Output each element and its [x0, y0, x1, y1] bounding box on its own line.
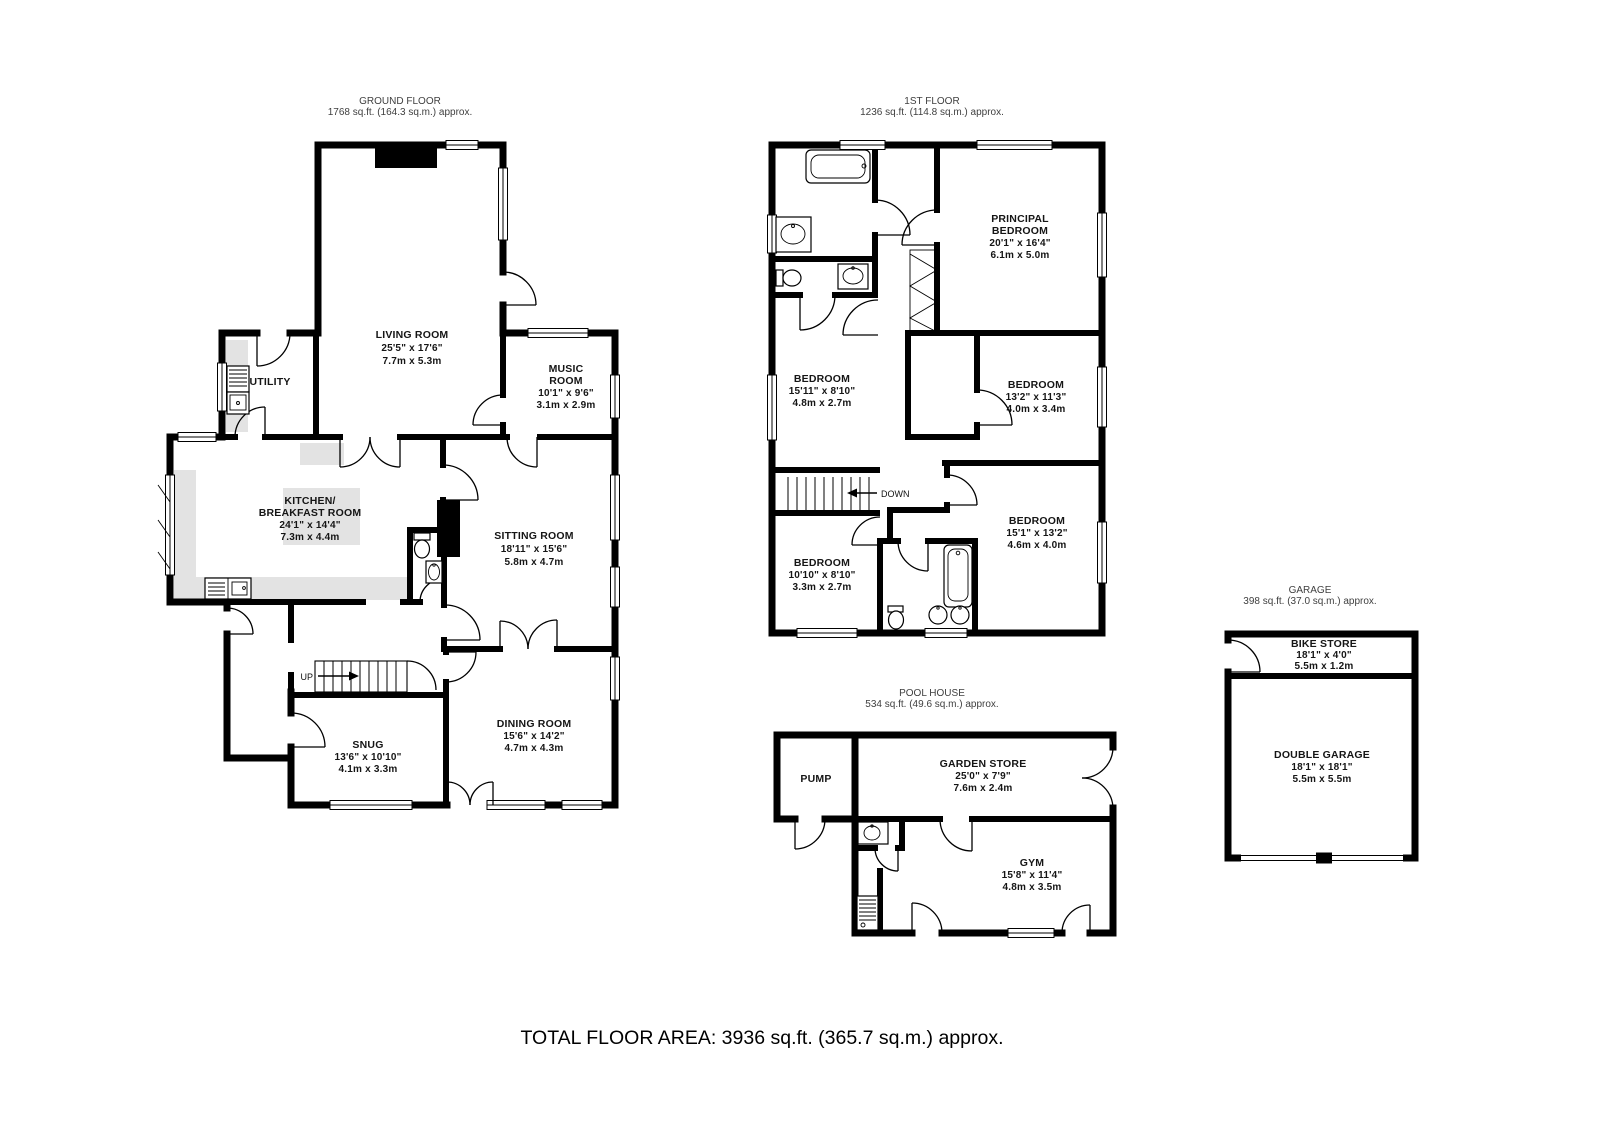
- music-room-imperial: 10'1" x 9'6": [538, 388, 594, 399]
- dining-room-metric: 4.7m x 4.3m: [505, 743, 564, 754]
- total-floor-area: TOTAL FLOOR AREA: 3936 sq.ft. (365.7 sq.…: [520, 1027, 1003, 1049]
- pump-label: PUMP: [800, 773, 831, 785]
- principal-bedroom-label-2: BEDROOM: [992, 225, 1048, 237]
- dining-room-label: DINING ROOM: [497, 718, 572, 730]
- stairs-up-label: UP: [300, 672, 313, 682]
- gym-label: GYM: [1020, 857, 1045, 869]
- bike-store-imperial: 18'1" x 4'0": [1296, 650, 1352, 661]
- kitchen-imperial: 24'1" x 14'4": [279, 520, 340, 531]
- music-room-label-2: ROOM: [549, 375, 583, 387]
- living-room-label: LIVING ROOM: [376, 329, 449, 341]
- stairs-down: DOWN: [788, 477, 910, 510]
- wc-toilet-icon: [414, 533, 430, 558]
- wc-basin-icon: [426, 561, 442, 583]
- utility-label: UTILITY: [249, 376, 290, 388]
- kitchen-counters: [174, 340, 408, 600]
- music-room-label-1: MUSIC: [549, 363, 584, 375]
- ground-floor-plan: UP LIVING ROOM 25'5" x 17'6" 7.7m: [158, 141, 620, 810]
- bedroom-right-low-metric: 4.6m x 4.0m: [1008, 540, 1067, 551]
- garden-store-imperial: 25'0" x 7'9": [955, 771, 1011, 782]
- bedroom-left-low-label: BEDROOM: [794, 557, 850, 569]
- garage-area: 398 sq.ft. (37.0 sq.m.) approx.: [1243, 596, 1376, 607]
- snug-label: SNUG: [352, 739, 383, 751]
- kitchen-label-1: KITCHEN/: [284, 495, 335, 507]
- pool-interior-walls: [855, 819, 1113, 933]
- stairs-up: UP: [300, 661, 436, 692]
- bedroom-right-low-imperial: 15'1" x 13'2": [1006, 528, 1067, 539]
- garage-plan: BIKE STORE 18'1" x 4'0" 5.5m x 1.2m DOUB…: [1228, 634, 1415, 864]
- double-garage-imperial: 18'1" x 18'1": [1291, 762, 1352, 773]
- snug-imperial: 13'6" x 10'10": [334, 752, 401, 763]
- bike-store-door: [1228, 640, 1260, 672]
- double-garage-metric: 5.5m x 5.5m: [1293, 774, 1352, 785]
- ground-floor-area: 1768 sq.ft. (164.3 sq.m.) approx.: [328, 107, 473, 118]
- bedroom-left-low-metric: 3.3m x 2.7m: [793, 582, 852, 593]
- bedroom-left-metric: 4.8m x 2.7m: [793, 398, 852, 409]
- bath-icon-second: [944, 545, 972, 607]
- shower-icon: [857, 896, 878, 930]
- double-garage-label: DOUBLE GARAGE: [1274, 749, 1370, 761]
- twin-basins-icon: [929, 606, 969, 624]
- wardrobe-icon: [910, 250, 937, 332]
- living-room-metric: 7.7m x 5.3m: [383, 356, 442, 367]
- stairs-down-label: DOWN: [881, 489, 910, 499]
- bedroom-left-low-imperial: 10'10" x 8'10": [788, 570, 855, 581]
- living-room-imperial: 25'5" x 17'6": [381, 343, 442, 354]
- chimney-breast: [375, 148, 437, 168]
- kitchen-sink-icon: [205, 578, 251, 599]
- pool-house-plan: PUMP GARDEN STORE 25'0" x 7'9" 7.6m x 2.…: [777, 735, 1113, 938]
- gym-imperial: 15'8" x 11'4": [1002, 870, 1063, 881]
- bedroom-right-mid-imperial: 13'2" x 11'3": [1006, 392, 1067, 403]
- bike-store-label: BIKE STORE: [1291, 638, 1357, 650]
- music-room-metric: 3.1m x 2.9m: [537, 400, 596, 411]
- sitting-room-label: SITTING ROOM: [494, 530, 573, 542]
- pool-basin-icon: [858, 822, 888, 844]
- garage-title: GARAGE: [1289, 585, 1332, 596]
- garden-store-label: GARDEN STORE: [940, 758, 1027, 770]
- sitting-room-imperial2: 18'11" x 15'6": [501, 544, 568, 555]
- chimney-breast: [437, 500, 460, 557]
- gym-metric: 4.8m x 3.5m: [1003, 882, 1062, 893]
- bathroom-basin-icon: [776, 217, 811, 252]
- floor-titles: GROUND FLOOR 1768 sq.ft. (164.3 sq.m.) a…: [328, 96, 1377, 710]
- first-floor-area: 1236 sq.ft. (114.8 sq.m.) approx.: [860, 107, 1004, 118]
- first-floor-title: 1ST FLOOR: [904, 96, 959, 107]
- toilet-icon-second: [888, 606, 904, 629]
- principal-bedroom-label-1: PRINCIPAL: [991, 213, 1049, 225]
- snug-metric: 4.1m x 3.3m: [339, 764, 398, 775]
- wc-toilet-icon-first: [776, 270, 801, 286]
- wc-basin-icon-first: [838, 264, 868, 289]
- kitchen-label-2: BREAKFAST ROOM: [259, 507, 362, 519]
- floorplan-page: UP LIVING ROOM 25'5" x 17'6" 7.7m: [0, 0, 1600, 1131]
- pool-house-area: 534 sq.ft. (49.6 sq.m.) approx.: [865, 699, 998, 710]
- bedroom-right-mid-metric: 4.0m x 3.4m: [1007, 404, 1066, 415]
- ground-exterior-walls: [170, 145, 615, 805]
- sitting-room-metric: 5.8m x 4.7m: [505, 557, 564, 568]
- principal-bedroom-metric: 6.1m x 5.0m: [991, 250, 1050, 261]
- principal-bedroom-imperial: 20'1" x 16'4": [989, 238, 1050, 249]
- bedroom-right-mid-label: BEDROOM: [1008, 379, 1064, 391]
- kitchen-metric: 7.3m x 4.4m: [281, 532, 340, 543]
- ground-floor-title: GROUND FLOOR: [359, 96, 441, 107]
- garden-store-metric: 7.6m x 2.4m: [954, 783, 1013, 794]
- garage-door: [1241, 853, 1403, 864]
- first-floor-plan: DOWN: [768, 141, 1107, 638]
- utility-appliance-icon: [227, 366, 249, 414]
- pool-house-title: POOL HOUSE: [899, 688, 965, 699]
- bath-icon: [806, 150, 870, 183]
- bedroom-right-low-label: BEDROOM: [1009, 515, 1065, 527]
- pool-doors: [795, 747, 1113, 933]
- bedroom-left-label: BEDROOM: [794, 373, 850, 385]
- bike-store-metric: 5.5m x 1.2m: [1295, 661, 1354, 672]
- pool-windows: [1008, 929, 1054, 938]
- bedroom-left-imperial: 15'11" x 8'10": [789, 386, 856, 397]
- floorplan-canvas: UP LIVING ROOM 25'5" x 17'6" 7.7m: [0, 0, 1600, 1131]
- dining-room-imperial: 15'6" x 14'2": [503, 731, 564, 742]
